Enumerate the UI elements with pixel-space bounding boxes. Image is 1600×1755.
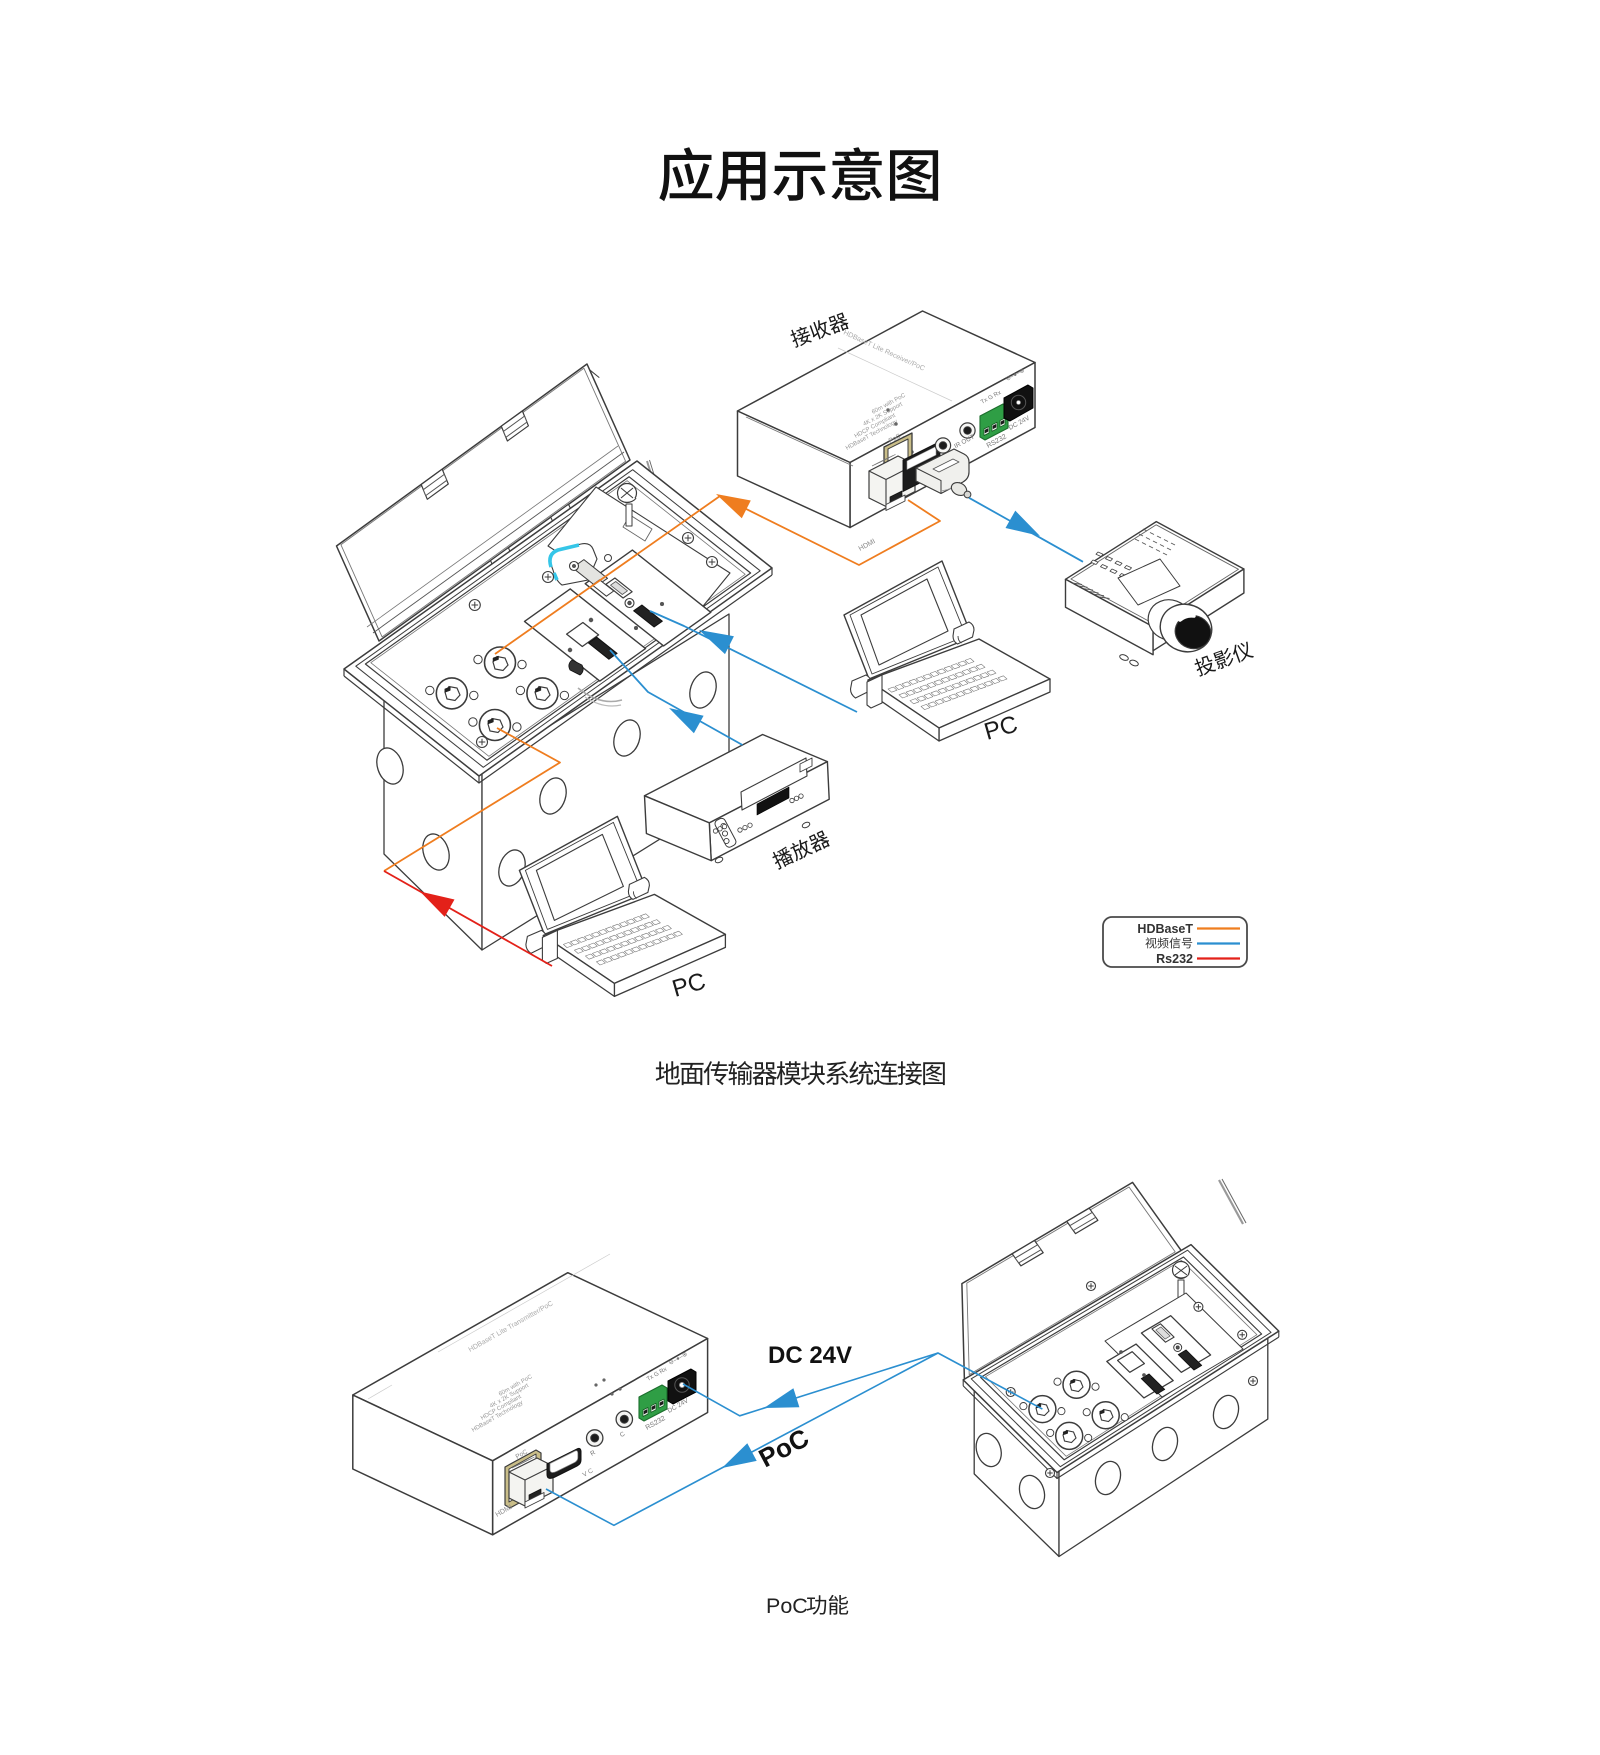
svg-text:PoC: PoC — [766, 1594, 808, 1618]
svg-text:HDBaseT: HDBaseT — [1137, 922, 1193, 936]
svg-text:DC 24V: DC 24V — [768, 1342, 852, 1369]
svg-text:Rs232: Rs232 — [1156, 952, 1193, 966]
